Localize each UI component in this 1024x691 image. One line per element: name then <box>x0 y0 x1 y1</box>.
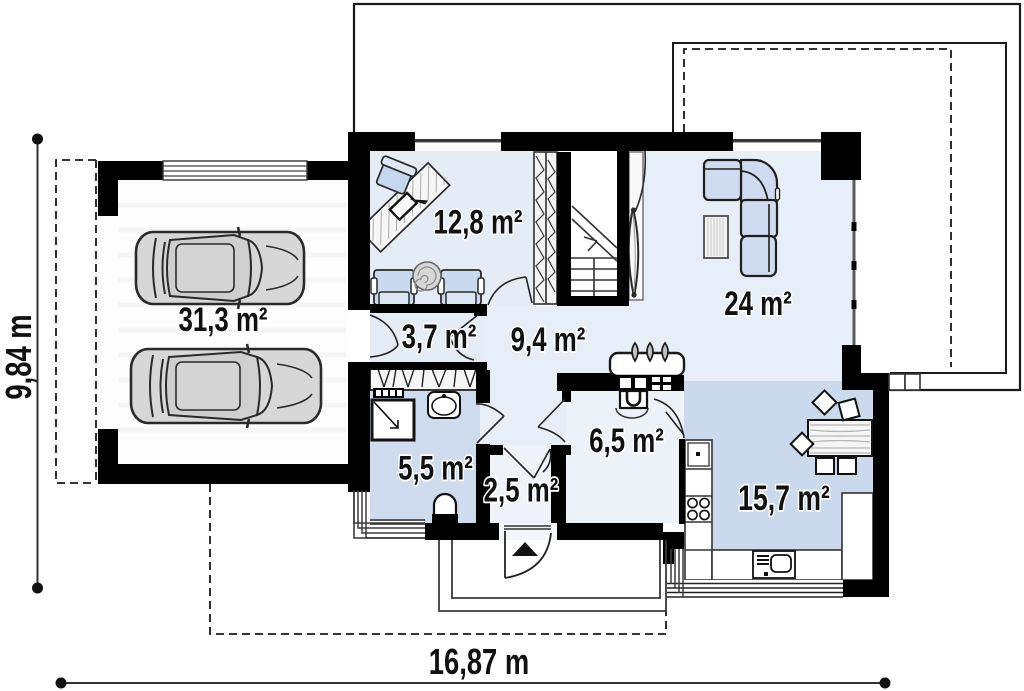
svg-text:9,84 m: 9,84 m <box>0 314 39 399</box>
svg-text:5,5 m²: 5,5 m² <box>398 450 473 487</box>
svg-text:31,3 m²: 31,3 m² <box>178 302 267 339</box>
svg-text:12,8 m²: 12,8 m² <box>433 204 522 241</box>
svg-text:15,7 m²: 15,7 m² <box>738 478 830 517</box>
svg-text:6,5 m²: 6,5 m² <box>589 423 664 460</box>
svg-text:2,5 m²: 2,5 m² <box>484 472 559 509</box>
svg-text:16,87 m: 16,87 m <box>429 641 529 682</box>
svg-text:24 m²: 24 m² <box>724 286 791 323</box>
svg-text:9,4 m²: 9,4 m² <box>511 322 586 359</box>
svg-text:3,7 m²: 3,7 m² <box>402 319 477 356</box>
